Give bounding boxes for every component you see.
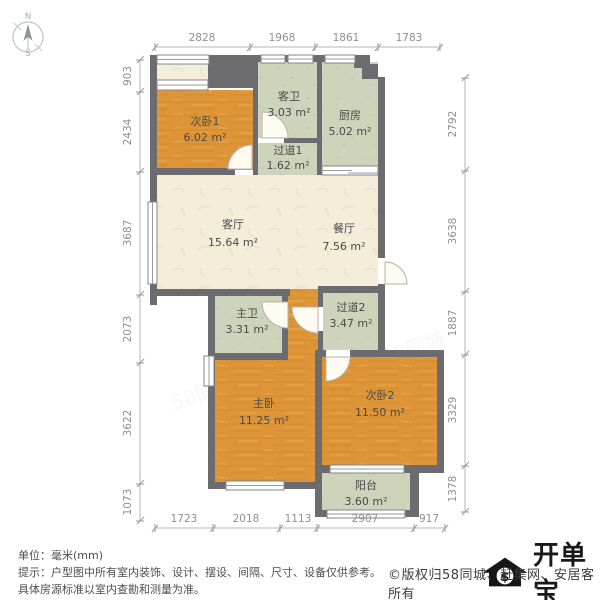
room-top-bay xyxy=(157,62,208,82)
label-kitchen-name: 厨房 xyxy=(339,109,361,122)
unit-note: 单位：毫米(mm) xyxy=(18,547,381,564)
compass: N S xyxy=(13,12,43,59)
label-master-bath-area: 3.31 m² xyxy=(225,323,268,336)
window-bay-sill xyxy=(157,80,208,90)
dim-right-4: 1378 xyxy=(447,476,459,503)
dim-right-2: 1887 xyxy=(447,310,459,337)
label-bedroom1-name: 次卧1 xyxy=(191,114,220,128)
window-bedroom2-balcony xyxy=(330,465,404,473)
copyright-line: ©版权归58同城、赶集网、安居客所有 xyxy=(388,564,600,600)
window-top-bay xyxy=(157,55,209,64)
room-fills xyxy=(157,62,437,510)
compass-south-label: S xyxy=(25,49,30,59)
dim-left-1: 2434 xyxy=(122,118,134,145)
window-guest-bath-1 xyxy=(261,55,285,63)
dim-bottom-2: 1113 xyxy=(285,513,312,525)
label-hallway1-area: 1.62 m² xyxy=(266,159,309,172)
footer-notes: 单位：毫米(mm) 提示：户型图中所有室内装饰、设计、摆设、间隔、尺寸、设备仅供… xyxy=(18,547,381,598)
dim-right-3: 3329 xyxy=(447,397,459,424)
tip-note-line2: 具体房源标准以室内查勘和测量为准。 xyxy=(18,581,381,598)
label-dining-name: 餐厅 xyxy=(333,221,355,235)
dim-left-2: 3687 xyxy=(122,220,134,247)
window-master-left xyxy=(204,356,214,386)
label-guest-bath-area: 3.03 m² xyxy=(267,106,310,119)
label-kitchen-area: 5.02 m² xyxy=(328,125,371,138)
floor-plan-canvas: 58同城 58同城 58同城 N S xyxy=(0,0,600,600)
label-hallway2-area: 3.47 m² xyxy=(329,317,372,330)
window-living-left xyxy=(148,202,157,284)
dim-top-1: 1968 xyxy=(269,32,296,44)
dim-left-0: 903 xyxy=(122,66,134,86)
compass-north-label: N xyxy=(25,12,31,22)
dim-right-1: 3638 xyxy=(447,218,459,245)
label-balcony-name: 阳台 xyxy=(355,478,377,492)
label-master-bedroom-area: 11.25 m² xyxy=(239,414,289,427)
window-kitchen xyxy=(325,55,355,63)
dim-top-3: 1783 xyxy=(396,32,423,44)
label-master-bedroom-name: 主卧 xyxy=(253,397,275,410)
window-guest-bath-2 xyxy=(288,55,313,63)
label-bedroom1-area: 6.02 m² xyxy=(183,131,226,144)
label-hallway1-name: 过道1 xyxy=(274,143,303,157)
dim-bottom-4: 917 xyxy=(419,513,439,525)
window-master-bottom xyxy=(226,481,284,490)
dim-right-0: 2792 xyxy=(447,111,459,138)
label-bedroom2-name: 次卧2 xyxy=(366,388,395,402)
dim-bottom-3: 2907 xyxy=(352,513,379,525)
label-hallway2-name: 过道2 xyxy=(337,300,366,314)
label-dining-area: 7.56 m² xyxy=(322,240,365,253)
floor-plan-page: 58同城 58同城 58同城 N S xyxy=(0,0,600,600)
label-living-area: 15.64 m² xyxy=(208,236,258,249)
dim-bottom-1: 2018 xyxy=(233,513,260,525)
label-guest-bath-name: 客卫 xyxy=(278,89,300,103)
dim-left-3: 2073 xyxy=(122,316,134,343)
dim-left-5: 1073 xyxy=(122,489,134,516)
dim-left-4: 3622 xyxy=(122,410,134,437)
label-balcony-area: 3.60 m² xyxy=(344,495,387,508)
label-living-name: 客厅 xyxy=(222,217,244,231)
dim-top-0: 2828 xyxy=(189,32,216,44)
label-bedroom2-area: 11.50 m² xyxy=(355,406,405,419)
label-master-bath-name: 主卫 xyxy=(236,307,258,320)
door-kitchen-sliding xyxy=(322,166,378,175)
tip-note-line1: 提示：户型图中所有室内装饰、设计、摆设、间隔、尺寸、设备仅供参考。 xyxy=(18,564,381,581)
dim-bottom-0: 1723 xyxy=(171,513,198,525)
dim-top-2: 1861 xyxy=(333,32,360,44)
door-entrance xyxy=(385,262,407,284)
